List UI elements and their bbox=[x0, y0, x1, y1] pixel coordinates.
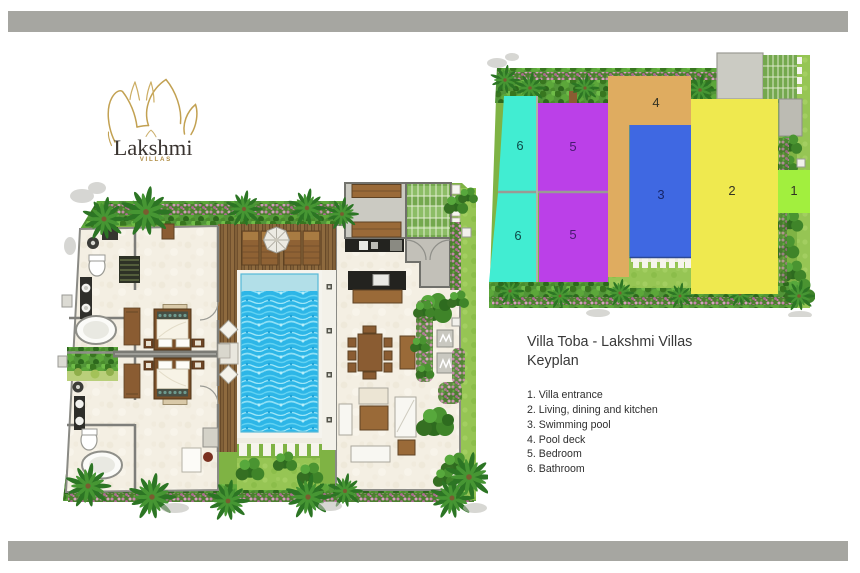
svg-text:6: 6 bbox=[516, 138, 523, 153]
svg-text:3: 3 bbox=[657, 187, 664, 202]
svg-text:1: 1 bbox=[790, 183, 797, 198]
svg-text:6: 6 bbox=[514, 228, 521, 243]
svg-text:4: 4 bbox=[652, 95, 659, 110]
svg-text:5: 5 bbox=[569, 227, 576, 242]
svg-text:5: 5 bbox=[569, 139, 576, 154]
svg-text:2: 2 bbox=[728, 183, 735, 198]
